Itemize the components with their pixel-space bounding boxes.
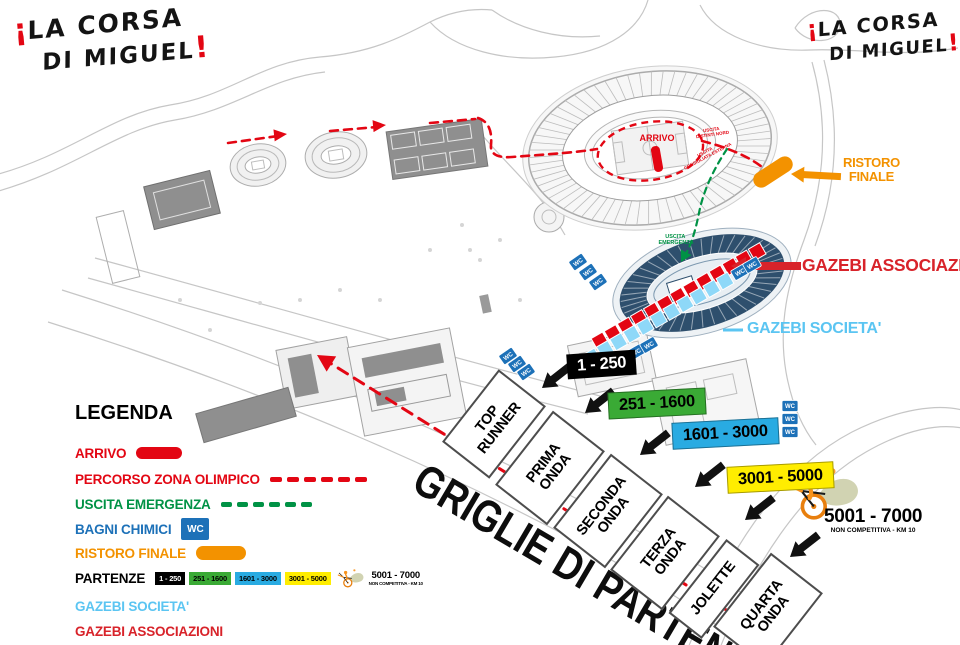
start-range-callout-3: 1601 - 3000 <box>671 417 779 450</box>
svg-text:WC: WC <box>785 417 796 423</box>
legend-row-gazebi-associazioni: GAZEBI ASSOCIAZIONI <box>75 622 223 640</box>
svg-text:WC: WC <box>785 430 796 436</box>
gazebi-associazioni-label: GAZEBI ASSOCIAZIONI <box>802 255 960 276</box>
legend-label-ristoro: RISTORO FINALE <box>75 546 186 561</box>
uscita-dash-swatch <box>221 502 312 507</box>
arrivo-label: ARRIVO <box>639 133 674 143</box>
svg-text:WC: WC <box>785 404 796 410</box>
wc-box: WC <box>782 414 798 425</box>
event-logo-secondary: ¡LA CORSA DI MIGUEL! <box>806 8 959 64</box>
logo-close-exclamation: ! <box>193 30 209 66</box>
start-range-callout-2: 251 - 1600 <box>607 387 706 419</box>
ristoro-line2: FINALE <box>843 170 900 184</box>
start-range-arrow <box>739 491 778 527</box>
legend-label-arrivo: ARRIVO <box>75 446 126 461</box>
legend-title: LEGENDA <box>75 402 173 425</box>
partenze-chip-1: 1 - 250 <box>155 572 185 585</box>
ristoro-finale-label: RISTORO FINALE <box>843 156 900 185</box>
legend: LEGENDA ARRIVO PERCORSO ZONA OLIMPICO US… <box>75 398 395 643</box>
legend-row-arrivo: ARRIVO <box>75 444 182 462</box>
ristoro-bar-swatch <box>196 546 246 560</box>
legend-label-bagni: BAGNI CHIMICI <box>75 522 171 537</box>
legend-row-percorso: PERCORSO ZONA OLIMPICO <box>75 470 367 488</box>
legend-row-uscita: USCITA EMERGENZA <box>75 495 312 513</box>
legend-row-gazebi-societa: GAZEBI SOCIETA' <box>75 597 189 615</box>
partenze-chip-2: 251 - 1600 <box>189 572 231 585</box>
ristoro-line1: RISTORO <box>843 156 900 170</box>
logo-open-exclamation: ¡ <box>12 12 29 48</box>
start-range-callout-4: 3001 - 5000 <box>726 461 834 494</box>
gazebi-societa-label: GAZEBI SOCIETA' <box>747 320 881 338</box>
arrivo-bar-swatch <box>136 447 182 459</box>
legend-label-partenze: PARTENZE <box>75 571 145 586</box>
legend-label-percorso: PERCORSO ZONA OLIMPICO <box>75 472 260 487</box>
legend-label-gazebi-associazioni: GAZEBI ASSOCIAZIONI <box>75 624 223 639</box>
legend-row-ristoro: RISTORO FINALE <box>75 544 246 562</box>
partenze-chip-3: 1601 - 3000 <box>235 572 281 585</box>
partenze-chip-5: 5001 - 7000NON COMPETITIVA - KM 10 <box>369 570 423 586</box>
percorso-dash-swatch <box>270 477 367 482</box>
wc-box: WC <box>782 401 798 412</box>
legend-label-gazebi-societa: GAZEBI SOCIETA' <box>75 599 189 614</box>
start-range-callout-5: 5001 - 7000NON COMPETITIVA - KM 10 <box>824 506 922 534</box>
start-range-callout-1: 1 - 250 <box>566 350 637 380</box>
wc-swatch: WC <box>181 518 209 540</box>
wc-box: WC <box>782 427 798 438</box>
event-map-canvas: ARRIVO USCITA DISTINTI NORD USCITA CONSI… <box>0 0 960 645</box>
jolette-wheelchair-icon <box>335 567 365 589</box>
legend-label-uscita: USCITA EMERGENZA <box>75 497 211 512</box>
legend-row-partenze: PARTENZE 1 - 250251 - 16001601 - 3000300… <box>75 569 423 587</box>
start-range-arrow <box>689 458 728 494</box>
logo-close-exclamation: ! <box>947 29 960 57</box>
start-range-arrow <box>784 528 823 564</box>
ristoro-finale-arrow <box>791 166 842 185</box>
partenze-chip-4: 3001 - 5000 <box>285 572 331 585</box>
legend-row-bagni: BAGNI CHIMICI WC <box>75 520 209 538</box>
partenze-swatches: 1 - 250251 - 16001601 - 30003001 - 50005… <box>155 567 423 589</box>
event-logo: ¡LA CORSA DI MIGUEL! <box>13 3 210 75</box>
logo-open-exclamation: ¡ <box>806 15 819 43</box>
